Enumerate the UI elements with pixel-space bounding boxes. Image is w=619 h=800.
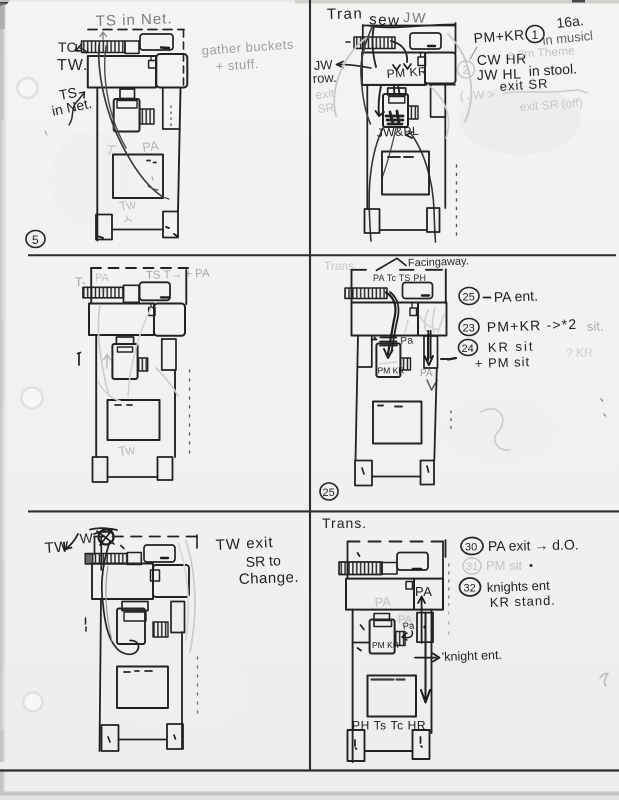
svg-text:row.: row. — [312, 70, 337, 86]
svg-text:Pa: Pa — [400, 334, 414, 347]
svg-text:PA: PA — [141, 138, 160, 155]
svg-text:PA: PA — [95, 272, 110, 284]
svg-text:PA: PA — [374, 594, 392, 610]
svg-text:TS in Net.: TS in Net. — [96, 10, 173, 30]
svg-text:+ PM sit: + PM sit — [475, 354, 531, 371]
svg-text:? KR: ? KR — [566, 346, 593, 360]
svg-text:PA ent.: PA ent. — [494, 287, 539, 305]
svg-text:PA: PA — [420, 368, 433, 379]
svg-text:32: 32 — [464, 583, 476, 595]
svg-text:PA exit → d.O.: PA exit → d.O. — [488, 536, 579, 554]
svg-text:25: 25 — [463, 292, 475, 304]
svg-text:TW exit: TW exit — [215, 534, 274, 554]
svg-text:Trans.: Trans. — [322, 515, 367, 531]
svg-text:1: 1 — [532, 28, 539, 42]
svg-text:SR to: SR to — [245, 552, 281, 570]
svg-text:sit.: sit. — [587, 318, 604, 334]
svg-text:'knight ent.: 'knight ent. — [442, 648, 503, 664]
svg-text:+ stuff.: + stuff. — [215, 56, 259, 74]
svg-text:Facingaway.: Facingaway. — [408, 255, 469, 269]
svg-text:5: 5 — [32, 233, 39, 247]
svg-text:PM+KR ->*2: PM+KR ->*2 — [487, 316, 578, 335]
svg-text:TC.: TC. — [58, 39, 81, 55]
svg-text:25: 25 — [323, 487, 335, 499]
svg-text:2: 2 — [463, 63, 470, 77]
svg-text:31: 31 — [466, 561, 478, 573]
svg-text:Pa: Pa — [402, 620, 415, 632]
svg-text:SR: SR — [317, 100, 335, 116]
svg-text:JW: JW — [403, 9, 428, 26]
svg-text:PM sit: PM sit — [486, 558, 523, 573]
svg-text:Tw: Tw — [118, 196, 138, 214]
svg-text:PM KR: PM KR — [372, 640, 399, 650]
svg-text:24: 24 — [462, 343, 474, 355]
svg-text:TS T→ + PA: TS T→ + PA — [146, 268, 211, 282]
svg-text:KR sit: KR sit — [488, 338, 535, 355]
svg-text:Change.: Change. — [239, 569, 300, 588]
svg-text:Trans: Trans — [324, 259, 354, 273]
svg-text:Tran: Tran — [327, 5, 364, 23]
svg-text:TW.: TW. — [57, 57, 88, 74]
svg-text:KR stand.: KR stand. — [490, 593, 557, 610]
svg-text:PA: PA — [415, 584, 432, 599]
svg-text:23: 23 — [463, 323, 475, 335]
svg-text:( JW >: ( JW > — [459, 87, 495, 103]
svg-text:30: 30 — [465, 542, 477, 554]
svg-text:PA Tc TS PH: PA Tc TS PH — [373, 273, 426, 283]
svg-text:Tw: Tw — [117, 442, 136, 459]
